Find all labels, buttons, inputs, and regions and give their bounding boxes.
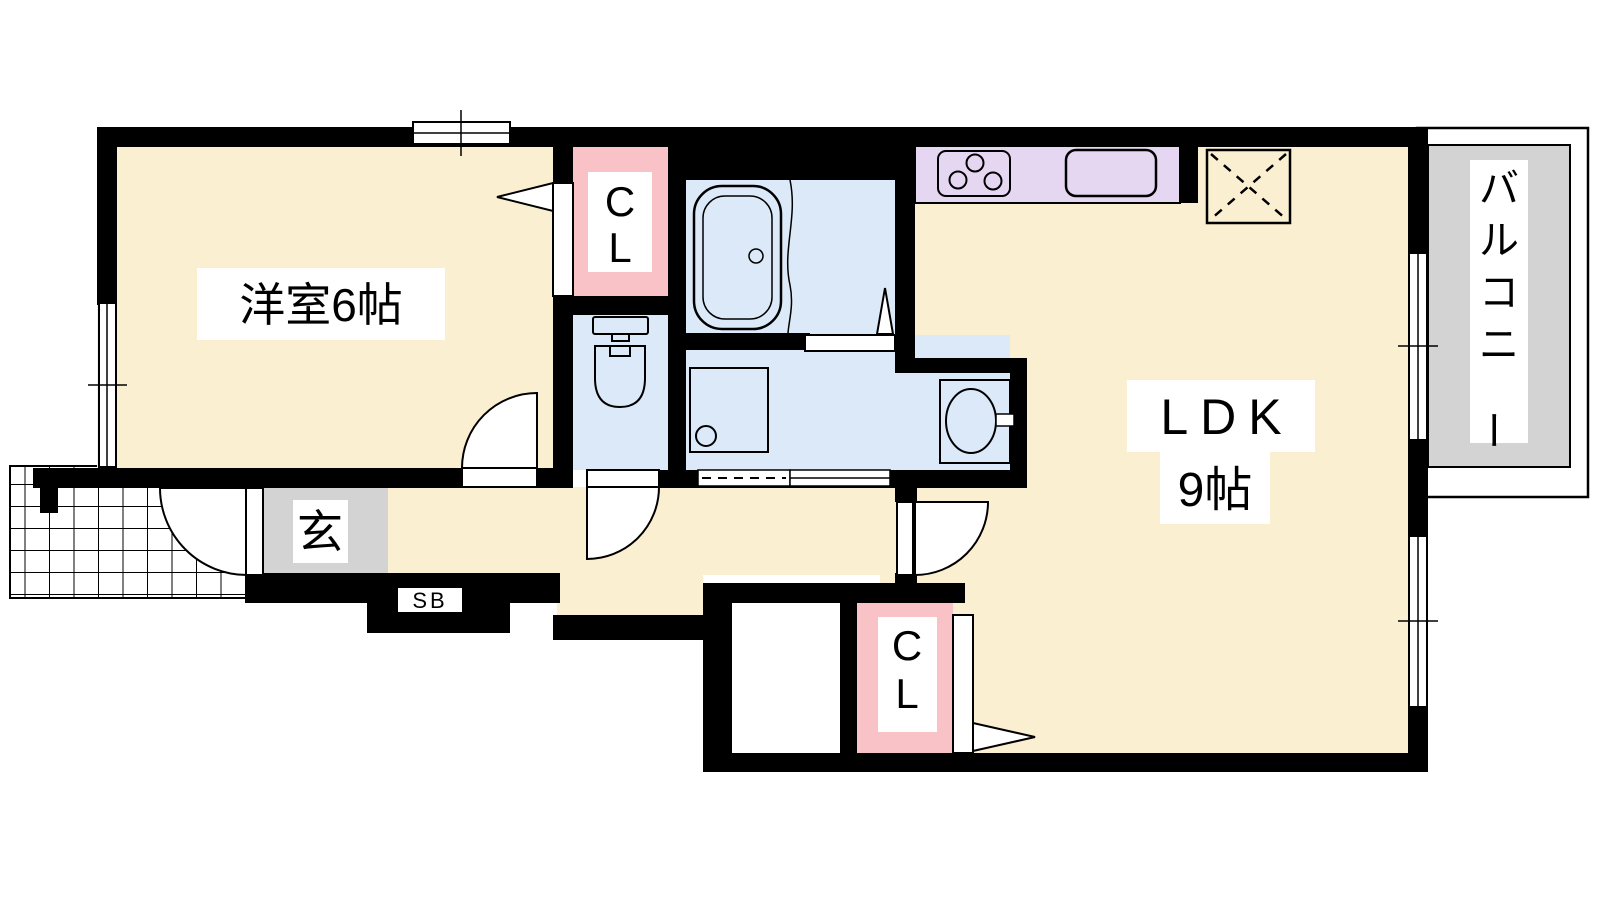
wall-bottom (723, 753, 1428, 772)
wall-cl-toilet-divider (553, 296, 668, 315)
wall-left-upper (97, 127, 117, 305)
refrigerator-space-icon (1207, 150, 1290, 223)
wall-toilet-right (668, 127, 686, 488)
kitchen-counter (915, 145, 1180, 203)
wall-right-seg1 (1408, 127, 1428, 253)
wall-bath-wash-divider (668, 333, 810, 350)
closet-bottom-label: CL (892, 622, 922, 717)
shoebox-label: SB (412, 588, 447, 613)
wall-cl-bottom-top (723, 583, 965, 603)
wall-bath-top (668, 127, 915, 180)
wall-right-seg2 (1408, 440, 1428, 536)
wall-right-seg3 (1408, 707, 1428, 772)
washroom-floor (686, 335, 1010, 487)
closet-top-label: CL (605, 178, 635, 271)
ldk-size-label: 9帖 (1178, 464, 1253, 517)
wall-kitchen-stub (1180, 143, 1198, 203)
floor-plan-canvas: バルコニー (0, 0, 1600, 900)
washroom-sliding-door-icon (698, 470, 890, 486)
floor-plan: バルコニー (0, 0, 1600, 900)
wall-vertical-mid (703, 583, 732, 772)
western-room-label: 洋室6帖 (239, 279, 403, 331)
toilet-floor (573, 315, 668, 470)
wall-cl-bottom-left (840, 602, 857, 755)
wall-cl-left-upper (553, 127, 573, 183)
wall-ldk-door-stub-top (895, 488, 917, 502)
wall-toilet-left (553, 296, 573, 488)
entrance-label: 玄 (297, 506, 343, 558)
wall-wash-top-right (895, 358, 1027, 373)
wall-porch-notch (40, 470, 58, 513)
ldk-label: LDK (1160, 389, 1293, 445)
wall-bath-right (895, 127, 915, 358)
wall-hall-bottom-b (553, 615, 723, 640)
balcony: バルコニー (1417, 128, 1588, 497)
